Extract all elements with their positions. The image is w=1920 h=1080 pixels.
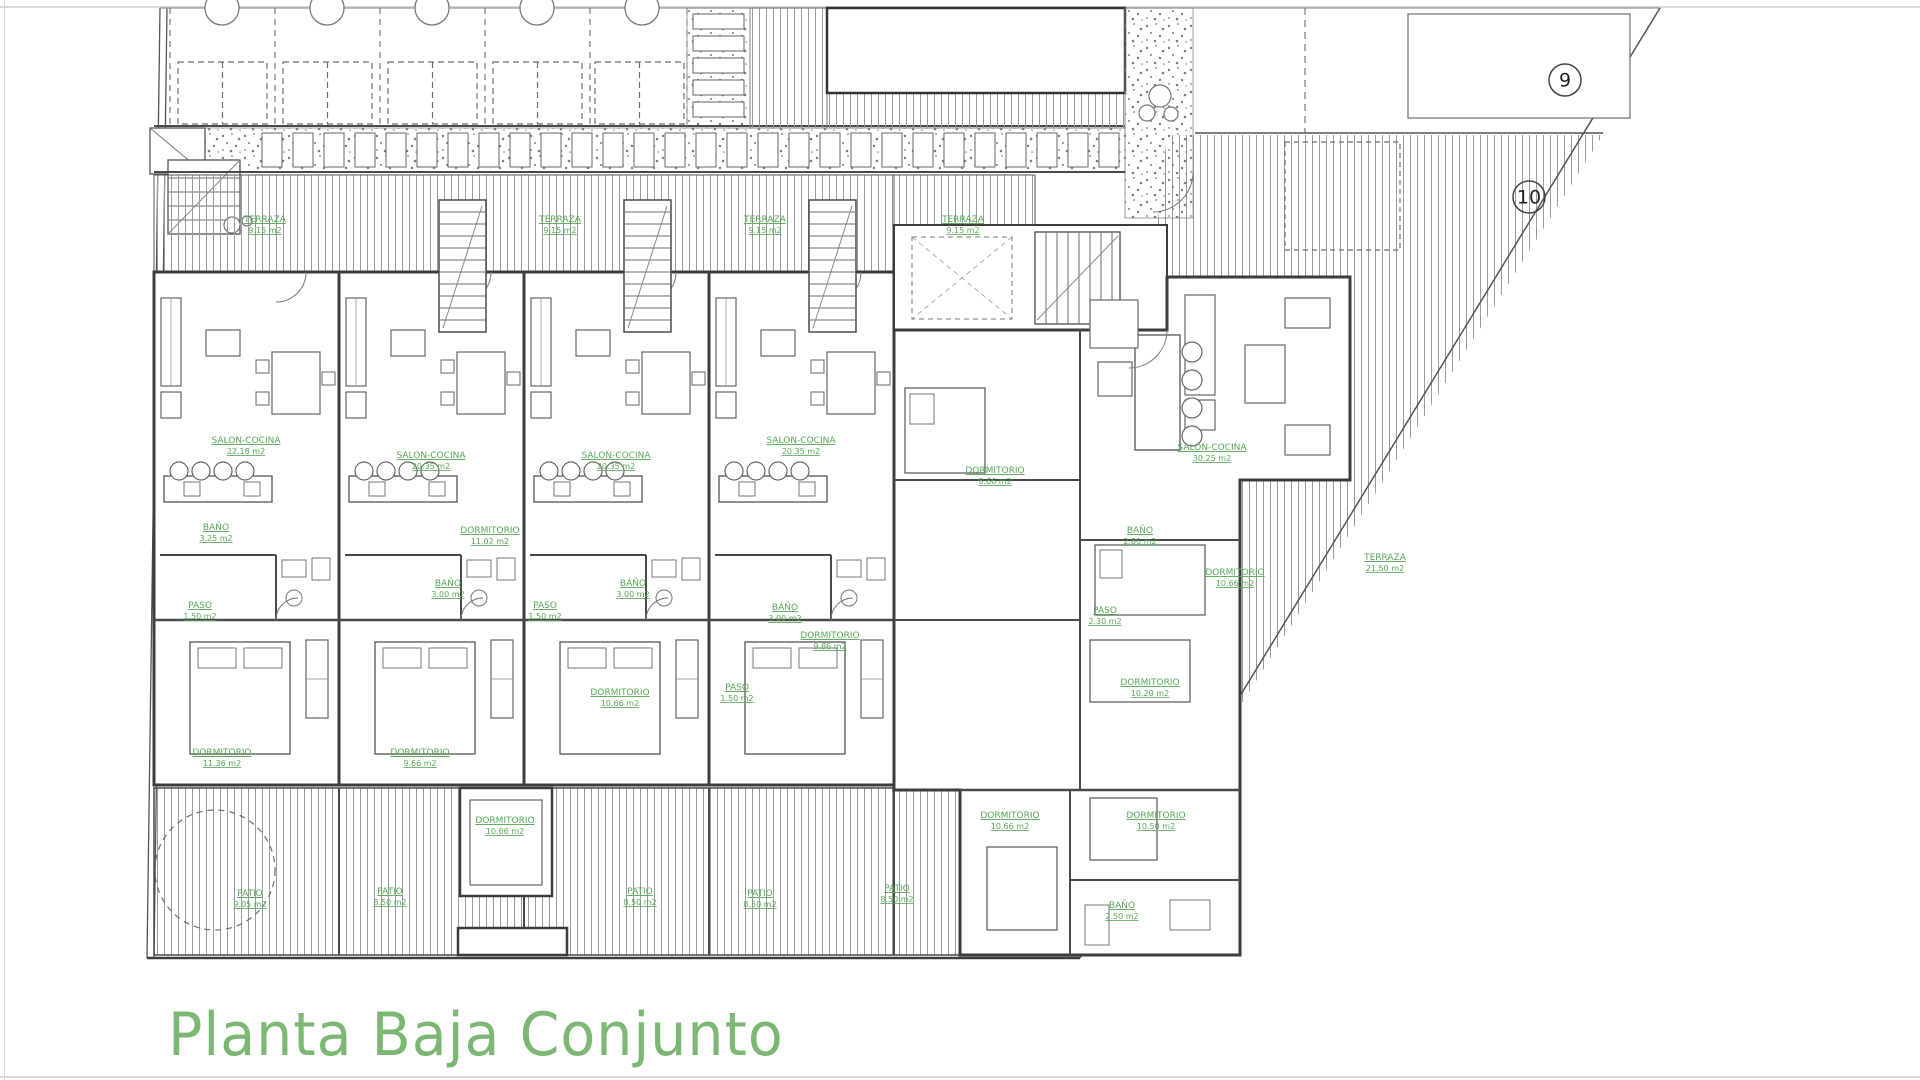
room-label: SALON-COCINA [397, 451, 467, 461]
paver [789, 133, 809, 167]
room-area-label: 9.15 m2 [248, 226, 281, 235]
paver [727, 133, 747, 167]
paver [758, 133, 778, 167]
room-area-label: 8.50 m2 [880, 895, 913, 904]
paver [634, 133, 654, 167]
room-label: PATIO [237, 889, 263, 899]
room-label: PASO [725, 683, 749, 693]
room-label: PATIO [884, 884, 910, 894]
pool-area [750, 8, 1125, 128]
paver [603, 133, 623, 167]
room-label: PATIO [747, 889, 773, 899]
room-label: TERRAZA [941, 215, 985, 225]
paver [913, 133, 933, 167]
room-area-label: 10.66 m2 [1216, 579, 1254, 588]
room-label: DORMITORIO [800, 631, 859, 641]
paver [448, 133, 468, 167]
room-label: DORMITORIO [965, 466, 1024, 476]
paver [975, 133, 995, 167]
room-area-label: 10.50 m2 [1137, 822, 1175, 831]
room-label: PATIO [377, 887, 403, 897]
paver [882, 133, 902, 167]
room-label: DORMITORIO [390, 748, 449, 758]
room-area-label: 8.50 m2 [373, 898, 406, 907]
unit-stair [624, 200, 671, 332]
unit-stair [439, 200, 486, 332]
paver [944, 133, 964, 167]
paver [355, 133, 375, 167]
room-area-label: 8.50 m2 [743, 900, 776, 909]
room-area-label: 9.15 m2 [748, 226, 781, 235]
paver [479, 133, 499, 167]
paver [1099, 133, 1119, 167]
paver [1068, 133, 1088, 167]
paver [262, 133, 282, 167]
room-area-label: 20.35 m2 [597, 462, 635, 471]
room-area-label: 2.30 m2 [1088, 617, 1121, 626]
room-area-label: 9.05 m2 [233, 900, 266, 909]
room-label: DORMITORIO [1120, 678, 1179, 688]
room-label: DORMITORIO [590, 688, 649, 698]
paver [510, 133, 530, 167]
room-area-label: 9.86 m2 [813, 642, 846, 651]
room-label: DORMITORIO [192, 748, 251, 758]
paver [820, 133, 840, 167]
room-area-label: 11.36 m2 [203, 759, 241, 768]
floor-plan-canvas: TERRAZA9.15 m2TERRAZA9.15 m2TERRAZA9.15 … [0, 0, 1920, 1080]
townhouse-units [154, 200, 894, 785]
plot-marker-number: 9 [1559, 70, 1571, 92]
room-label: TERRAZA [243, 215, 287, 225]
room-label: SALON-COCINA [1178, 443, 1248, 453]
room-area-label: 3.25 m2 [199, 534, 232, 543]
plan-title: Planta Baja Conjunto [168, 1000, 784, 1069]
screenshot-stage: TERRAZA9.15 m2TERRAZA9.15 m2TERRAZA9.15 … [0, 0, 1920, 1080]
room-area-label: 20.35 m2 [412, 462, 450, 471]
room-area-label: 11.02 m2 [471, 537, 509, 546]
paver [541, 133, 561, 167]
swimming-pool [827, 8, 1125, 93]
room-area-label: 3.00 m2 [616, 590, 649, 599]
room-area-label: 22.18 m2 [227, 447, 265, 456]
room-area-label: 2.80 m2 [1123, 537, 1156, 546]
room-area-label: 21.50 m2 [1366, 564, 1404, 573]
room-label: PASO [188, 601, 212, 611]
room-label: SALON-COCINA [767, 436, 837, 446]
paver [293, 133, 313, 167]
room-area-label: 9.15 m2 [543, 226, 576, 235]
paver [572, 133, 592, 167]
room-label: SALON-COCINA [212, 436, 282, 446]
room-label: PATIO [627, 887, 653, 897]
room-label: TERRAZA [1363, 553, 1407, 563]
room-area-label: 9.15 m2 [946, 226, 979, 235]
room-label: PASO [533, 601, 557, 611]
paver [696, 133, 716, 167]
room-label: DORMITORIO [460, 526, 519, 536]
room-label: TERRAZA [743, 215, 787, 225]
room-label: SALON-COCINA [582, 451, 652, 461]
room-area-label: 10.20 m2 [1131, 689, 1169, 698]
paver [665, 133, 685, 167]
room-label: DORMITORIO [1205, 568, 1264, 578]
room-label: BAÑO [203, 522, 229, 533]
room-area-label: 8.50 m2 [623, 898, 656, 907]
room-label: TERRAZA [538, 215, 582, 225]
unit-stair [809, 200, 856, 332]
room-label: BAÑO [772, 602, 798, 613]
paver [1037, 133, 1057, 167]
room-label: BAÑO [1109, 900, 1135, 911]
room-area-label: 2.50 m2 [1105, 912, 1138, 921]
room-area-label: 10.66 m2 [486, 827, 524, 836]
plot-marker-number: 10 [1517, 187, 1541, 209]
room-area-label: 1.50 m2 [528, 612, 561, 621]
room-area-label: 20.35 m2 [782, 447, 820, 456]
room-area-label: 3.00 m2 [768, 614, 801, 623]
room-label: BAÑO [435, 578, 461, 589]
paver [417, 133, 437, 167]
room-label: DORMITORIO [1126, 811, 1185, 821]
room-label: BAÑO [1127, 525, 1153, 536]
paver [1006, 133, 1026, 167]
room-area-label: 10.66 m2 [601, 699, 639, 708]
paver [386, 133, 406, 167]
room-area-label: 10.66 m2 [991, 822, 1029, 831]
paver [851, 133, 871, 167]
paver [324, 133, 344, 167]
room-label: BAÑO [620, 578, 646, 589]
room-area-label: 30.25 m2 [1193, 454, 1231, 463]
rear-patios [154, 788, 960, 955]
room-area-label: 8.66 m2 [978, 477, 1011, 486]
room-area-label: 3.00 m2 [431, 590, 464, 599]
room-label: DORMITORIO [475, 816, 534, 826]
room-area-label: 1.50 m2 [720, 694, 753, 703]
room-label: DORMITORIO [980, 811, 1039, 821]
room-label: PASO [1093, 606, 1117, 616]
room-area-label: 1.50 m2 [183, 612, 216, 621]
room-area-label: 9.66 m2 [403, 759, 436, 768]
